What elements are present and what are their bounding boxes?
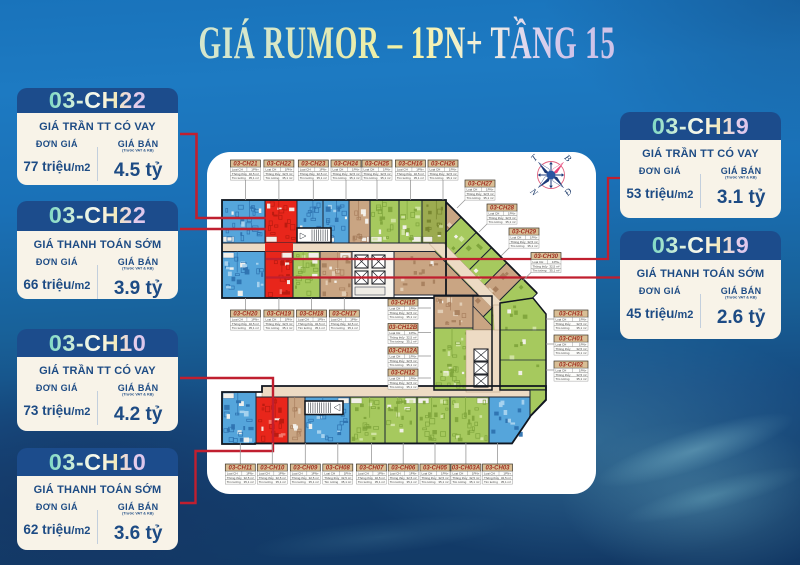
- svg-text:03-CH11: 03-CH11: [229, 465, 253, 471]
- svg-text:35,1 m²: 35,1 m²: [309, 480, 319, 484]
- svg-text:Tim tường: Tim tường: [390, 480, 404, 484]
- svg-text:Tim tường: Tim tường: [390, 315, 404, 319]
- svg-text:03-CH09: 03-CH09: [293, 465, 318, 471]
- svg-text:Tim tường: Tim tường: [489, 220, 503, 224]
- svg-text:35,1 m²: 35,1 m²: [282, 176, 292, 180]
- svg-text:03-CH28: 03-CH28: [490, 205, 515, 211]
- svg-text:03-CH12A: 03-CH12A: [389, 348, 417, 354]
- svg-text:35,1 m²: 35,1 m²: [244, 480, 254, 484]
- svg-text:35,1 m²: 35,1 m²: [407, 480, 417, 484]
- svg-text:35,1 m²: 35,1 m²: [527, 244, 537, 248]
- svg-text:03-CH19: 03-CH19: [267, 311, 292, 317]
- svg-text:35,1 m²: 35,1 m²: [414, 176, 424, 180]
- svg-text:35,1 m²: 35,1 m²: [505, 220, 515, 224]
- svg-text:03-CH10: 03-CH10: [260, 465, 285, 471]
- svg-text:03-CH01: 03-CH01: [559, 336, 584, 342]
- svg-text:03-CH24: 03-CH24: [334, 161, 359, 167]
- svg-text:Tim tường: Tim tường: [390, 385, 404, 389]
- svg-text:Tim tường: Tim tường: [467, 196, 481, 200]
- svg-text:03-CH06: 03-CH06: [391, 465, 416, 471]
- svg-text:03-CH15: 03-CH15: [391, 300, 416, 306]
- svg-text:03-CH03: 03-CH03: [485, 465, 510, 471]
- svg-text:Tim tường: Tim tường: [259, 480, 273, 484]
- svg-text:Tim tường: Tim tường: [511, 244, 525, 248]
- svg-text:03-CH26: 03-CH26: [431, 161, 456, 167]
- svg-text:35,1 m²: 35,1 m²: [380, 176, 390, 180]
- svg-text:Tim tường: Tim tường: [265, 176, 279, 180]
- svg-text:Tim tường: Tim tường: [232, 326, 246, 330]
- svg-text:Tim tường: Tim tường: [390, 340, 404, 344]
- svg-text:Tim tường: Tim tường: [533, 269, 547, 273]
- svg-text:03-CH31: 03-CH31: [559, 311, 584, 317]
- svg-text:Tim tường: Tim tường: [227, 480, 241, 484]
- svg-text:35,1 m²: 35,1 m²: [276, 480, 286, 484]
- svg-text:Tim tường: Tim tường: [484, 480, 498, 484]
- svg-text:35,1 m²: 35,1 m²: [249, 326, 259, 330]
- svg-text:03-CH18: 03-CH18: [299, 311, 324, 317]
- svg-text:03-CH02: 03-CH02: [559, 362, 584, 368]
- svg-text:Tim tường: Tim tường: [300, 176, 314, 180]
- svg-text:Tim tường: Tim tường: [324, 480, 338, 484]
- svg-text:35,1 m²: 35,1 m²: [282, 326, 292, 330]
- svg-text:Tim tường: Tim tường: [430, 176, 444, 180]
- svg-text:35,1 m²: 35,1 m²: [341, 480, 351, 484]
- svg-text:35,1 m²: 35,1 m²: [483, 196, 493, 200]
- svg-text:35,1 m²: 35,1 m²: [549, 269, 559, 273]
- svg-text:Tim tường: Tim tường: [331, 326, 345, 330]
- svg-text:03-CH23: 03-CH23: [301, 161, 326, 167]
- svg-text:Tim tường: Tim tường: [298, 326, 312, 330]
- svg-text:35,1 m²: 35,1 m²: [576, 351, 586, 355]
- svg-text:35,1 m²: 35,1 m²: [406, 340, 416, 344]
- svg-text:03-CH20: 03-CH20: [233, 311, 258, 317]
- svg-text:03-CH21: 03-CH21: [233, 161, 258, 167]
- svg-text:03-CH17: 03-CH17: [332, 311, 357, 317]
- svg-text:35,1 m²: 35,1 m²: [317, 176, 327, 180]
- svg-text:Tim tường: Tim tường: [265, 326, 279, 330]
- svg-text:Tim tường: Tim tường: [452, 480, 466, 484]
- svg-text:Tim tường: Tim tường: [556, 351, 570, 355]
- svg-text:03-CH22: 03-CH22: [267, 161, 292, 167]
- svg-text:03-CH25: 03-CH25: [365, 161, 390, 167]
- svg-text:35,1 m²: 35,1 m²: [446, 176, 456, 180]
- svg-text:Tim tường: Tim tường: [292, 480, 306, 484]
- svg-text:Tim tường: Tim tường: [232, 176, 246, 180]
- svg-text:Tim tường: Tim tường: [556, 377, 570, 381]
- svg-text:03-CH16: 03-CH16: [398, 161, 423, 167]
- svg-text:Tim tường: Tim tường: [390, 363, 404, 367]
- svg-text:35,1 m²: 35,1 m²: [406, 315, 416, 319]
- svg-text:03-CH08: 03-CH08: [326, 465, 351, 471]
- svg-text:35,1 m²: 35,1 m²: [406, 385, 416, 389]
- svg-text:03-CH12B: 03-CH12B: [389, 325, 418, 331]
- svg-text:35,1 m²: 35,1 m²: [438, 480, 448, 484]
- svg-text:35,1 m²: 35,1 m²: [406, 363, 416, 367]
- svg-text:35,1 m²: 35,1 m²: [315, 326, 325, 330]
- svg-text:Tim tường: Tim tường: [358, 480, 372, 484]
- svg-text:35,1 m²: 35,1 m²: [501, 480, 511, 484]
- svg-text:03-CH03A: 03-CH03A: [452, 465, 480, 471]
- svg-text:Tim tường: Tim tường: [556, 326, 570, 330]
- svg-text:03-CH05: 03-CH05: [423, 465, 448, 471]
- svg-text:35,1 m²: 35,1 m²: [375, 480, 385, 484]
- svg-text:03-CH30: 03-CH30: [534, 254, 559, 260]
- svg-text:35,1 m²: 35,1 m²: [349, 176, 359, 180]
- svg-text:Tim tường: Tim tường: [333, 176, 347, 180]
- svg-text:Tim tường: Tim tường: [397, 176, 411, 180]
- svg-text:35,1 m²: 35,1 m²: [469, 480, 479, 484]
- svg-text:35,1 m²: 35,1 m²: [249, 176, 259, 180]
- svg-text:35,1 m²: 35,1 m²: [576, 377, 586, 381]
- svg-text:03-CH27: 03-CH27: [468, 181, 493, 187]
- svg-text:Tim tường: Tim tường: [364, 176, 378, 180]
- svg-text:35,1 m²: 35,1 m²: [576, 326, 586, 330]
- svg-text:03-CH12: 03-CH12: [391, 370, 416, 376]
- svg-text:03-CH07: 03-CH07: [359, 465, 384, 471]
- svg-text:03-CH29: 03-CH29: [512, 229, 537, 235]
- svg-text:Tim tường: Tim tường: [422, 480, 436, 484]
- svg-text:35,1 m²: 35,1 m²: [348, 326, 358, 330]
